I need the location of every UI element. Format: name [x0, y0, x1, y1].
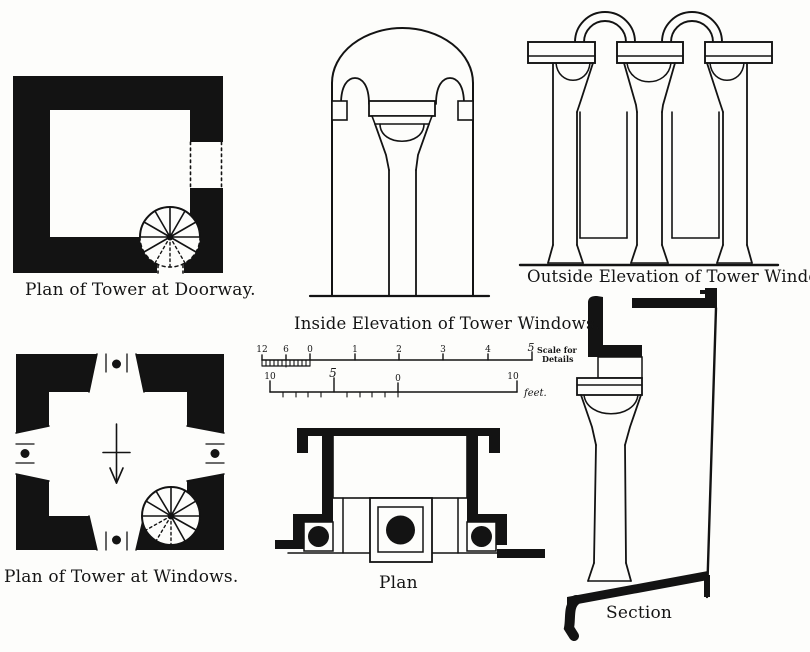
tick-label: 5	[528, 341, 535, 354]
tick-label: 3	[440, 345, 446, 355]
tick-label: 12	[256, 345, 267, 355]
outer-arch	[332, 28, 473, 83]
nook-shaft-right	[467, 522, 496, 551]
jamb-shaft-right	[707, 63, 752, 263]
window-shaft-dot	[112, 536, 121, 545]
orientation-arrow-icon	[103, 424, 130, 483]
shaft-section-dot	[386, 516, 415, 545]
caption-outside-elevation: Outside Elevation of Tower Windows.	[527, 267, 810, 286]
central-pier	[370, 498, 432, 562]
tick-label: 10	[507, 372, 519, 382]
tick-label: 0	[307, 345, 313, 355]
window-shaft-dot	[211, 449, 220, 458]
figure-outside-elevation	[520, 12, 778, 294]
figure-window-detail-plan	[275, 428, 545, 562]
window-shaft-dot	[112, 360, 121, 369]
opening-reveals	[580, 112, 719, 238]
spiral-stair-icon	[140, 207, 200, 267]
scale-bar: 12 6 0 1 2 3 4 5 Scale for Details	[256, 341, 577, 399]
jamb-shaft-left	[548, 63, 593, 263]
tick-label: 10	[264, 372, 276, 382]
feet-unit-label: feet.	[523, 388, 547, 399]
tick-label: 1	[352, 345, 358, 355]
window-opening-left	[16, 426, 49, 481]
cushion-capital	[380, 124, 424, 141]
central-shaft	[369, 101, 435, 295]
details-scale: 12 6 0 1 2 3 4 5 Scale for Details	[256, 341, 577, 367]
tick-label: 4	[485, 345, 491, 355]
wall-poche	[588, 288, 717, 597]
feet-scale: 10 5 0 10 feet.	[264, 366, 546, 399]
window-shaft-dot	[21, 449, 30, 458]
caption-window-plan: Plan	[379, 573, 418, 593]
mid-wall-shaft	[624, 63, 675, 263]
book-page: 12 6 0 1 2 3 4 5 Scale for Details	[0, 0, 810, 652]
figure-inside-elevation	[310, 28, 489, 296]
window-opening-top	[89, 354, 144, 392]
tick-label: 5	[329, 366, 337, 380]
figure-window-detail-section	[567, 288, 717, 636]
tick-label: 2	[396, 345, 402, 355]
window-opening-right	[187, 426, 224, 481]
details-scale-caption: Details	[542, 354, 574, 364]
inner-arch-left	[341, 78, 369, 104]
shaft-in-section	[577, 378, 642, 581]
inner-arch-right	[436, 78, 464, 104]
spiral-stair-icon	[142, 487, 200, 545]
caption-inside-elevation: Inside Elevation of Tower Windows.	[294, 314, 600, 333]
window-opening-bottom	[89, 516, 144, 550]
caption-plan-of-tower-at-doorway: Plan of Tower at Doorway.	[25, 280, 256, 300]
sill-drop	[569, 600, 576, 636]
figure-plan-of-tower-at-doorway	[13, 76, 223, 273]
sill-poche	[567, 571, 708, 606]
caption-plan-of-tower-at-windows: Plan of Tower at Windows.	[4, 567, 238, 587]
tick-label: 6	[283, 345, 289, 355]
tick-label: 0	[395, 374, 401, 384]
nook-shaft-left	[304, 522, 333, 551]
figure-plan-of-tower-at-windows	[16, 354, 224, 550]
doorway-opening	[189, 142, 223, 188]
caption-window-section: Section	[606, 603, 672, 623]
